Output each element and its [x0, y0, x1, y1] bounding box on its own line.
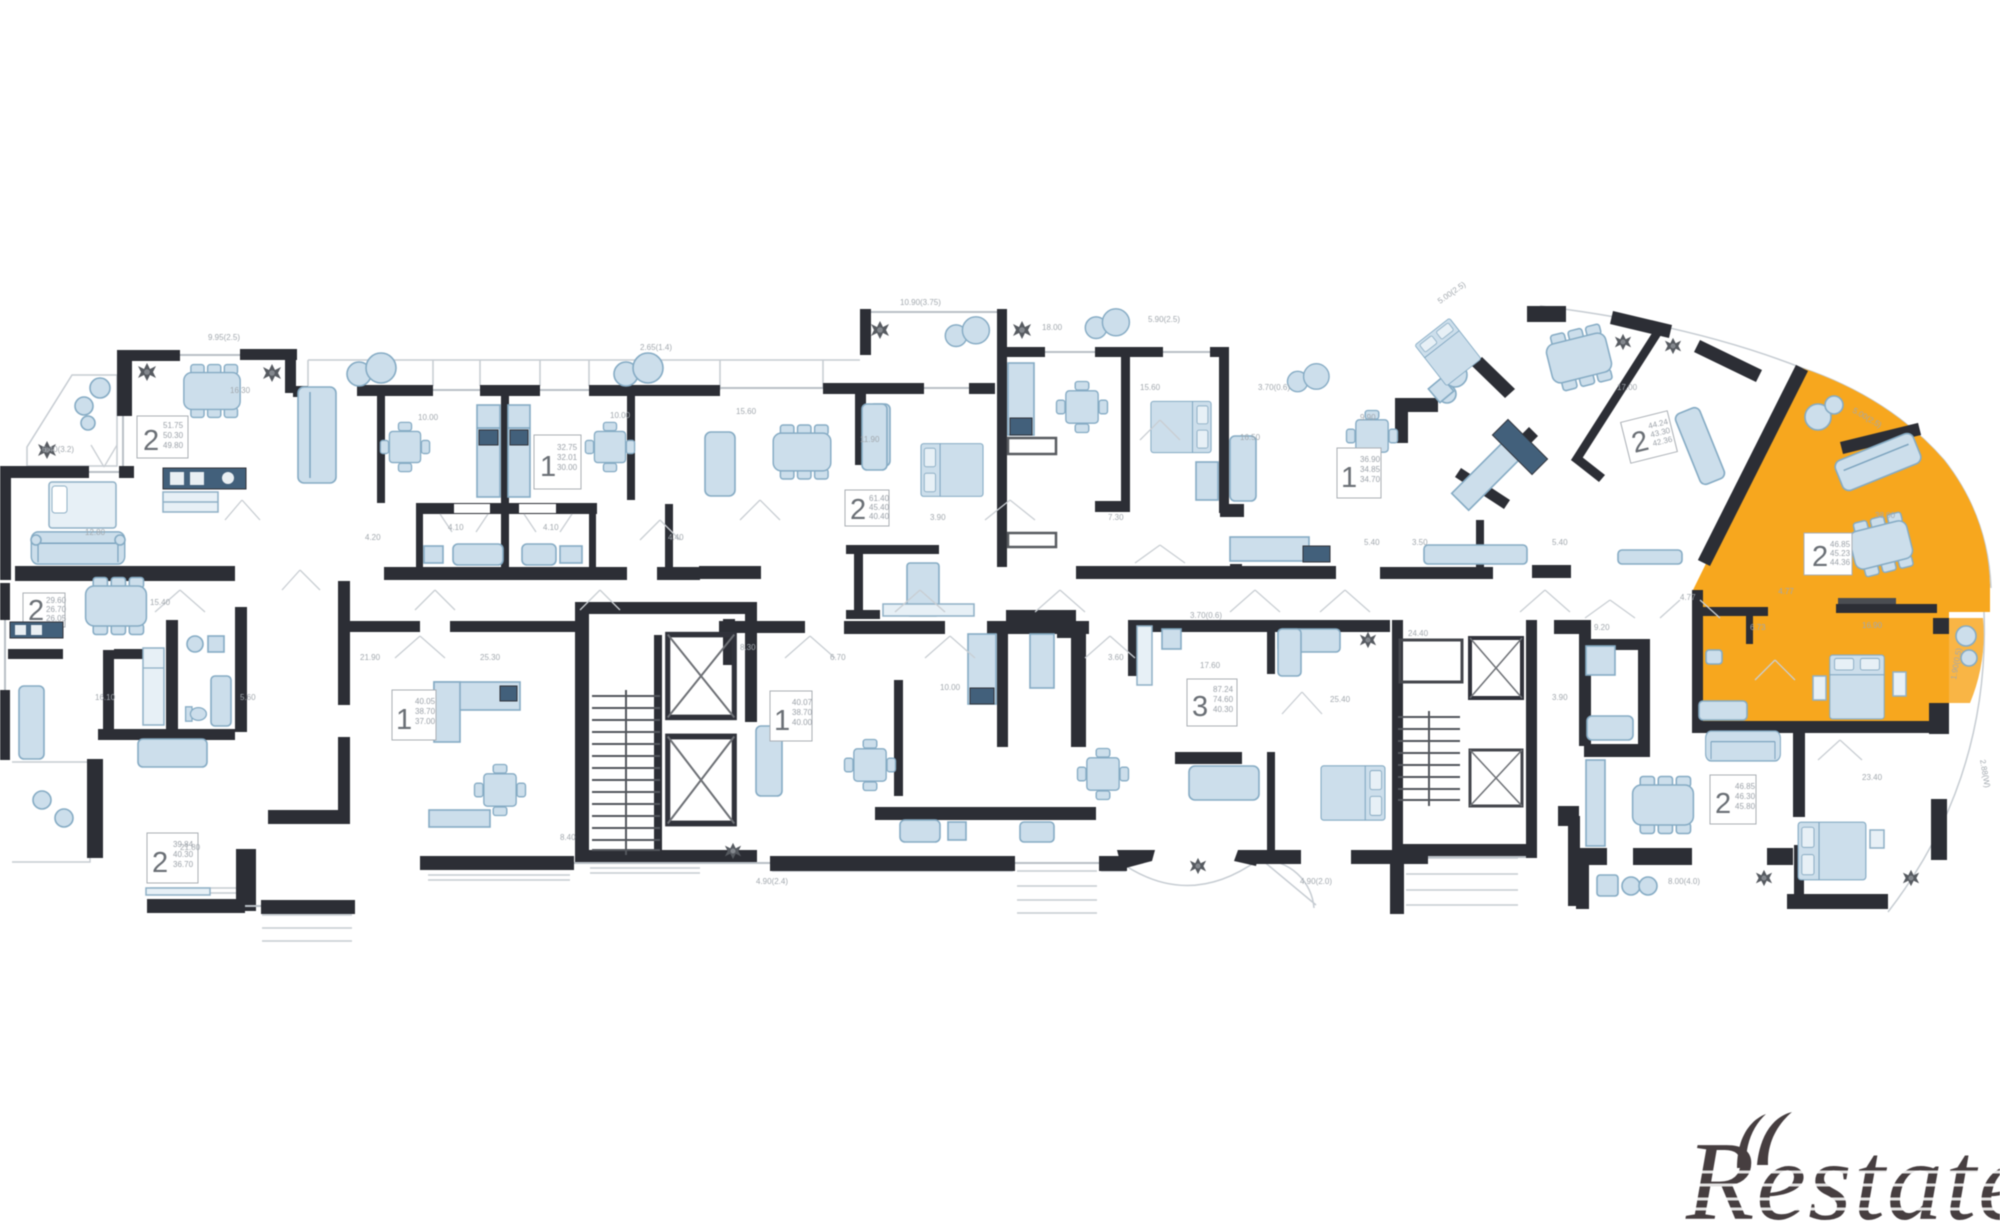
svg-text:40.40: 40.40 [869, 512, 890, 521]
svg-text:4.40: 4.40 [668, 533, 684, 542]
svg-text:5.60: 5.60 [240, 693, 256, 702]
svg-text:8.30: 8.30 [740, 643, 756, 652]
svg-text:4.90(2.4): 4.90(2.4) [756, 877, 788, 886]
svg-text:32.01: 32.01 [557, 453, 578, 462]
svg-text:37.00: 37.00 [415, 717, 436, 726]
svg-text:38.00: 38.00 [1875, 511, 1896, 520]
svg-text:16.90: 16.90 [1862, 621, 1883, 630]
svg-text:32.75: 32.75 [557, 443, 578, 452]
svg-text:23.40: 23.40 [1862, 773, 1883, 782]
svg-text:36.90: 36.90 [1360, 455, 1381, 464]
svg-text:46.30: 46.30 [1735, 792, 1756, 801]
svg-text:17.60: 17.60 [1200, 661, 1221, 670]
svg-text:8.40: 8.40 [560, 833, 576, 842]
svg-text:45.23: 45.23 [1830, 549, 1851, 558]
svg-text:40.30: 40.30 [1213, 705, 1234, 714]
svg-text:3: 3 [1192, 691, 1208, 723]
svg-text:9.20: 9.20 [1594, 623, 1610, 632]
svg-text:40.05: 40.05 [415, 697, 436, 706]
svg-text:46.85: 46.85 [1735, 782, 1756, 791]
svg-text:61.40: 61.40 [869, 494, 890, 503]
svg-text:38.70: 38.70 [792, 708, 813, 717]
svg-text:46.85: 46.85 [1830, 540, 1851, 549]
svg-text:21.80: 21.80 [180, 843, 201, 852]
svg-text:45.40: 45.40 [869, 503, 890, 512]
svg-text:25.30: 25.30 [480, 653, 501, 662]
svg-text:1: 1 [540, 451, 556, 483]
svg-text:1: 1 [396, 704, 412, 736]
svg-text:5.40: 5.40 [1364, 538, 1380, 547]
svg-text:2: 2 [850, 494, 866, 526]
svg-text:4.10: 4.10 [543, 523, 559, 532]
svg-text:17.00: 17.00 [1617, 383, 1638, 392]
svg-text:2: 2 [143, 425, 159, 457]
svg-text:7.30: 7.30 [1108, 513, 1124, 522]
svg-text:38.70: 38.70 [415, 707, 436, 716]
svg-text:6.73: 6.73 [1750, 623, 1766, 632]
svg-text:16.10: 16.10 [95, 693, 116, 702]
svg-text:3.90: 3.90 [1552, 693, 1568, 702]
svg-text:16.30: 16.30 [230, 386, 251, 395]
svg-text:36.70: 36.70 [173, 860, 194, 869]
svg-text:30.00: 30.00 [557, 463, 578, 472]
svg-text:16.50: 16.50 [1240, 433, 1261, 442]
svg-text:2: 2 [1715, 788, 1731, 820]
svg-text:3.60: 3.60 [1108, 653, 1124, 662]
svg-text:29.60: 29.60 [46, 596, 67, 605]
svg-text:9.90: 9.90 [1360, 413, 1376, 422]
svg-text:49.80: 49.80 [163, 441, 184, 450]
svg-text:4.77: 4.77 [1680, 593, 1696, 602]
svg-text:4.90(2.0): 4.90(2.0) [1300, 877, 1332, 886]
svg-text:1: 1 [774, 705, 790, 737]
svg-text:3.90: 3.90 [930, 513, 946, 522]
svg-text:40.07: 40.07 [792, 698, 813, 707]
svg-text:15.60: 15.60 [736, 407, 757, 416]
svg-text:3.70(0.6): 3.70(0.6) [1190, 611, 1222, 620]
svg-text:1: 1 [1341, 462, 1357, 494]
svg-text:9.95(2.5): 9.95(2.5) [208, 333, 240, 342]
svg-text:2: 2 [152, 847, 168, 879]
svg-text:6.70: 6.70 [830, 653, 846, 662]
svg-text:44.36: 44.36 [1830, 558, 1851, 567]
svg-text:24.40: 24.40 [1408, 629, 1429, 638]
svg-text:18.00: 18.00 [1042, 323, 1063, 332]
svg-text:51.75: 51.75 [163, 421, 184, 430]
svg-text:10.00: 10.00 [940, 683, 961, 692]
svg-text:6.40(3.2): 6.40(3.2) [42, 445, 74, 454]
svg-text:4.20: 4.20 [365, 533, 381, 542]
svg-text:10.00: 10.00 [610, 411, 631, 420]
svg-text:50.30: 50.30 [163, 431, 184, 440]
svg-text:15.40: 15.40 [150, 598, 171, 607]
svg-text:45.80: 45.80 [1735, 802, 1756, 811]
svg-text:21.90: 21.90 [360, 653, 381, 662]
svg-text:25.40: 25.40 [1330, 695, 1351, 704]
svg-text:5.40: 5.40 [1552, 538, 1568, 547]
svg-text:5.90(2.5): 5.90(2.5) [1148, 315, 1180, 324]
svg-text:34.70: 34.70 [1360, 475, 1381, 484]
svg-text:2: 2 [1812, 541, 1828, 573]
svg-text:4.77: 4.77 [1778, 587, 1794, 596]
svg-text:15.60: 15.60 [1140, 383, 1161, 392]
svg-text:2.65(1.4): 2.65(1.4) [640, 343, 672, 352]
svg-text:10.90(3.75): 10.90(3.75) [900, 298, 941, 307]
svg-text:10.00: 10.00 [418, 413, 439, 422]
svg-text:74.60: 74.60 [1213, 695, 1234, 704]
svg-text:87.24: 87.24 [1213, 685, 1234, 694]
svg-text:8.00(4.0): 8.00(4.0) [1668, 877, 1700, 886]
svg-text:26.70: 26.70 [46, 605, 67, 614]
svg-text:3.50: 3.50 [1412, 538, 1428, 547]
svg-text:3.70(0.6): 3.70(0.6) [1258, 383, 1290, 392]
svg-text:4.10: 4.10 [448, 523, 464, 532]
svg-text:34.85: 34.85 [1360, 465, 1381, 474]
svg-text:40.00: 40.00 [792, 718, 813, 727]
svg-text:12.80: 12.80 [85, 528, 106, 537]
svg-text:11.90: 11.90 [860, 435, 880, 444]
